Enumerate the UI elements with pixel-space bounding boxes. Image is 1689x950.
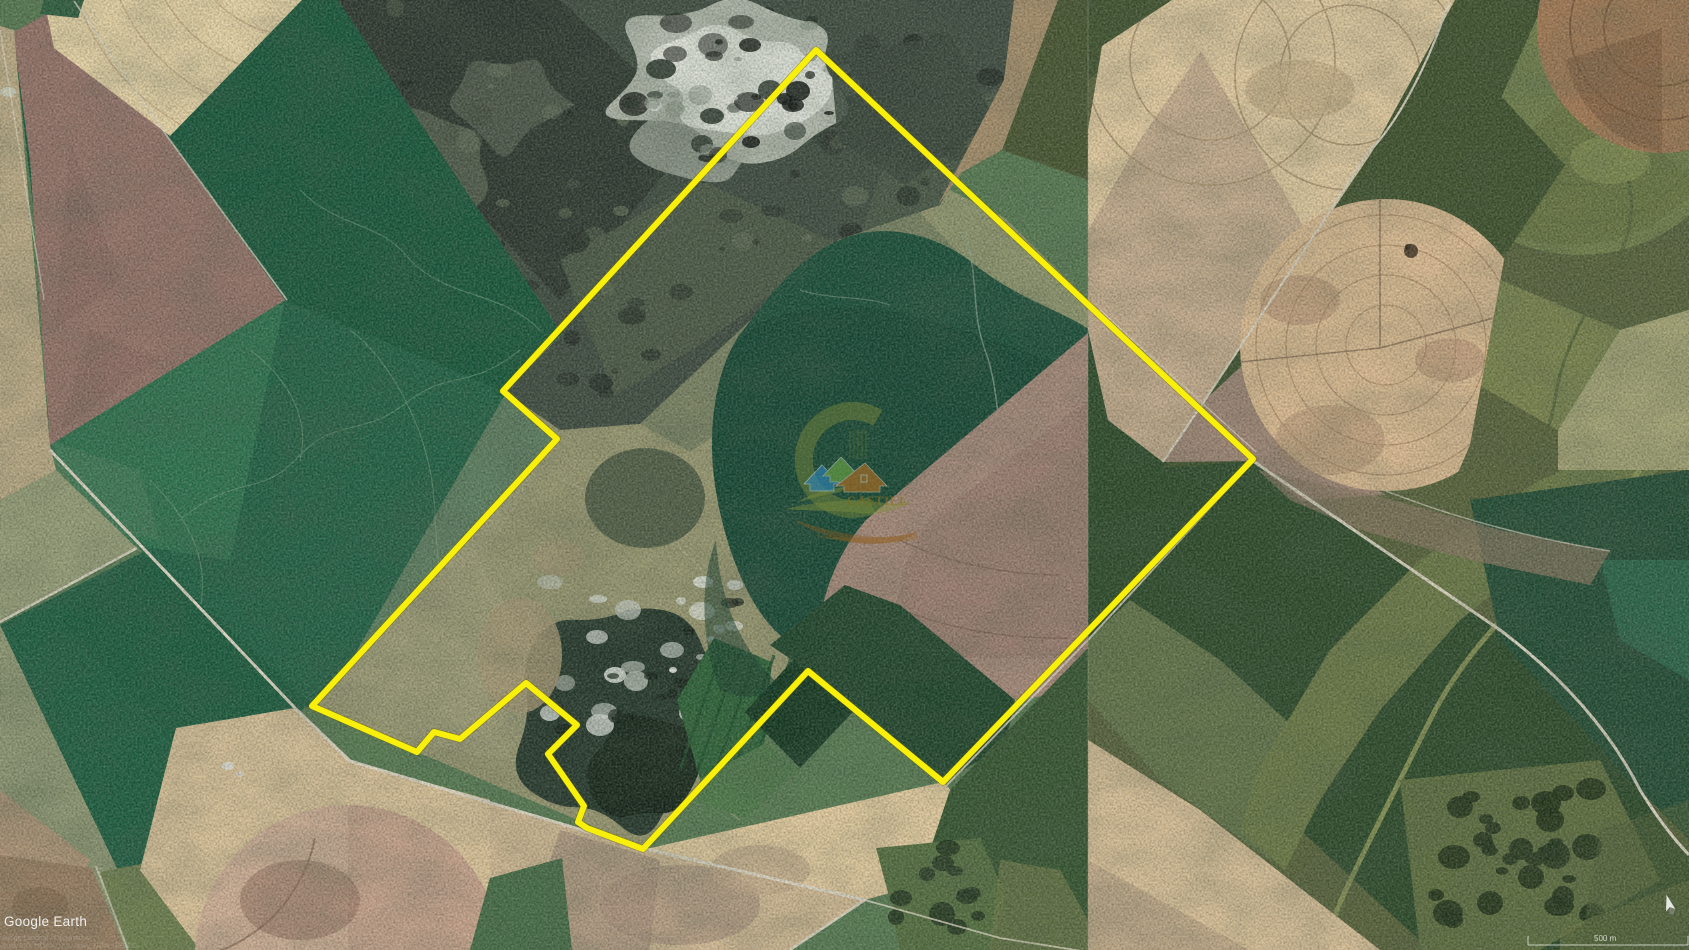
svg-text:Data SIO, NOAA, U.S. Navy, NGA: Data SIO, NOAA, U.S. Navy, NGA, GEBCO [2,943,138,950]
svg-text:Image Landsat / Copernicus: Image Landsat / Copernicus [2,935,90,942]
svg-text:CASTILL: CASTILL [847,493,908,508]
svg-text:500 m: 500 m [1594,934,1617,943]
svg-text:Google Earth: Google Earth [4,914,87,929]
